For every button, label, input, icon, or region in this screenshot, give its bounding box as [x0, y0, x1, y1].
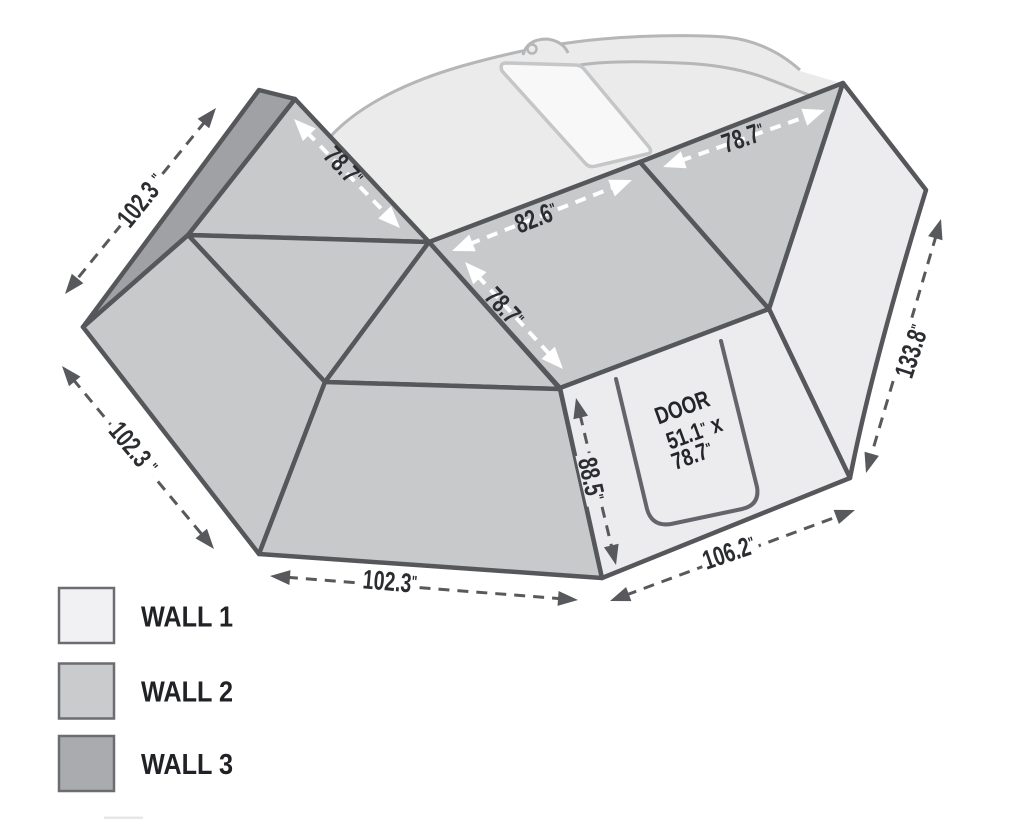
svg-text:102.3": 102.3"	[362, 564, 419, 598]
svg-text:WALL 3: WALL 3	[141, 747, 233, 780]
svg-text:WALL 1: WALL 1	[141, 600, 233, 633]
svg-text:WALL 2: WALL 2	[141, 675, 233, 708]
